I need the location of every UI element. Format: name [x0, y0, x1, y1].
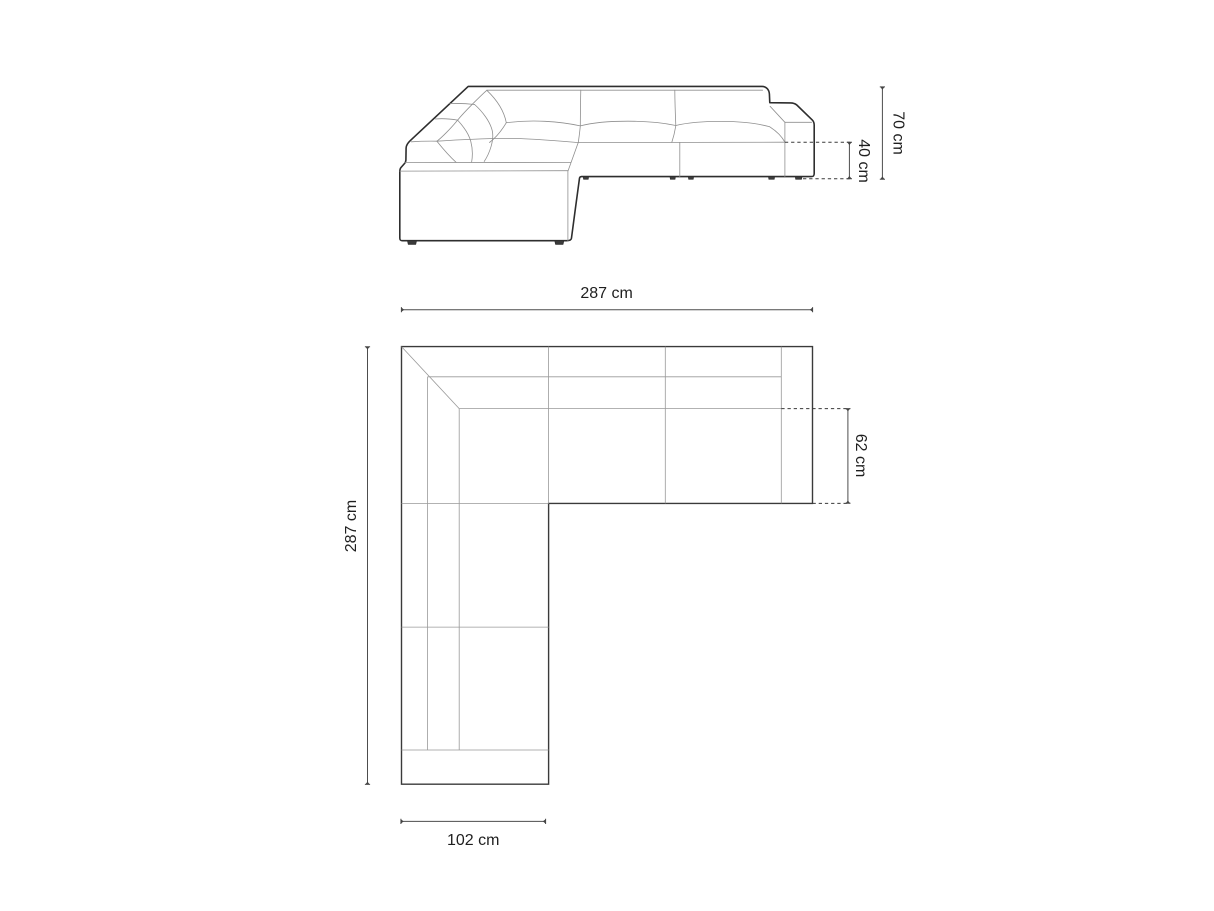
svg-text:70 cm: 70 cm	[889, 111, 906, 155]
svg-text:40 cm: 40 cm	[855, 139, 872, 183]
svg-text:62 cm: 62 cm	[852, 434, 869, 478]
svg-text:287 cm: 287 cm	[580, 285, 632, 302]
svg-text:102 cm: 102 cm	[447, 832, 499, 849]
svg-text:287 cm: 287 cm	[343, 500, 360, 552]
